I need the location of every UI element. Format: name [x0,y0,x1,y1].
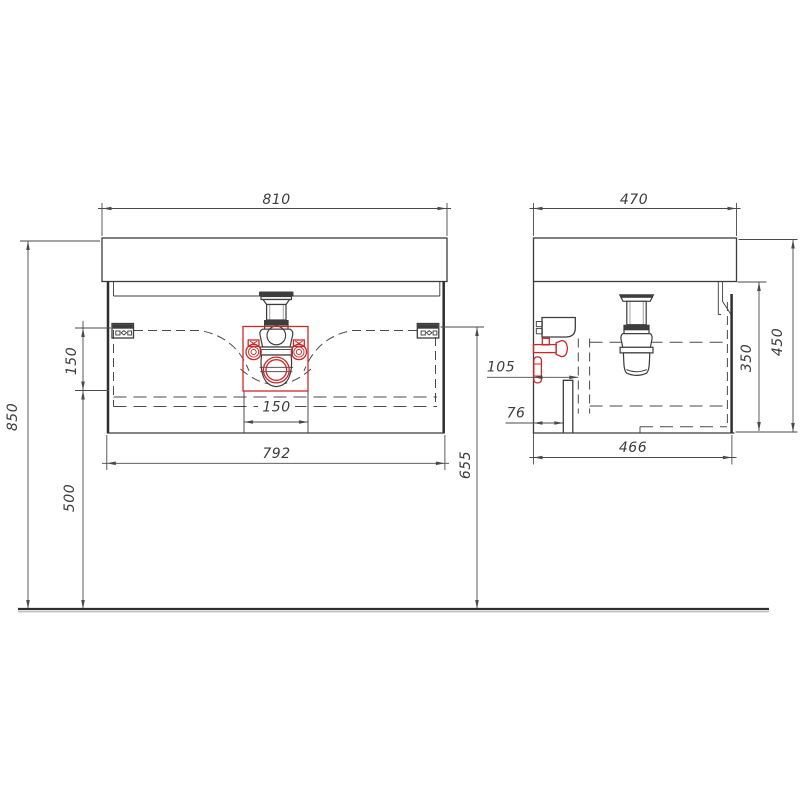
floor-line [18,609,769,612]
side-view [487,203,798,465]
vanity-drawing: 810 470 850 150 500 655 792 150 466 350 … [0,0,800,800]
siphon-body-side [621,334,652,348]
bowl-curve-right [304,331,417,372]
wall-bracket-left [112,324,134,339]
dim-label-500: 500 [62,484,78,512]
dim-label-350: 350 [739,344,755,372]
valve-riser [534,357,542,383]
siphon-flange [259,292,294,297]
dim-label-150-drain: 150 [262,400,290,416]
hidden-lines-side [578,302,727,433]
dim-label-450: 450 [770,328,786,356]
valve-pipe [534,345,557,353]
dim-label-150-left: 150 [64,347,80,375]
outlet-pipe-side [563,380,573,433]
technical-drawing-canvas: 810 470 850 150 500 655 792 150 466 350 … [0,0,800,800]
wall-bracket-right [417,324,439,339]
inlet-valve-highlight [534,338,568,383]
dim-label-810: 810 [262,192,290,208]
dim-label-470: 470 [620,192,648,208]
dim-label-105: 105 [487,360,515,376]
valve-handle [556,341,567,357]
dim-label-850: 850 [5,403,21,431]
washbasin-front [102,238,447,282]
siphon-nut [260,347,292,355]
dimension-labels: 810 470 850 150 500 655 792 150 466 350 … [5,192,786,512]
hanging-rail-side [718,282,731,315]
fitting-right [291,340,306,360]
bowl-curve-left [134,331,249,372]
dim-label-792: 792 [262,446,290,462]
dim-label-655: 655 [458,451,474,479]
washbasin-side [534,238,737,282]
overflow-box-side [536,318,575,338]
drain-pipe-hidden [578,339,589,414]
front-view [20,203,484,609]
valve-tab [542,338,549,345]
dim-label-76: 76 [507,406,526,422]
dim-label-466: 466 [619,440,647,456]
siphon-nut-side [620,347,653,353]
fitting-left [246,340,261,360]
siphon-side [620,295,654,376]
